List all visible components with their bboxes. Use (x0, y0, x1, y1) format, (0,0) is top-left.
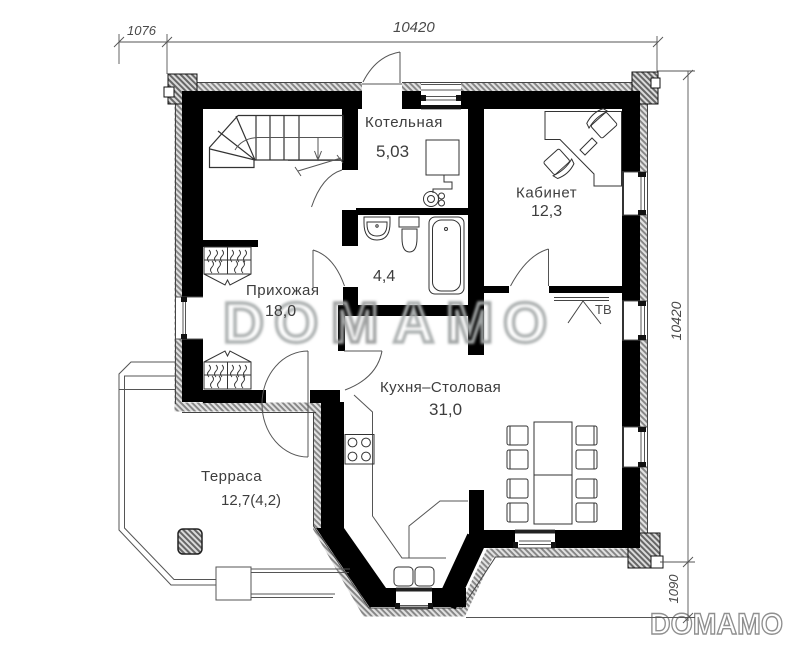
svg-text:10420: 10420 (393, 19, 435, 36)
svg-text:O: O (274, 291, 318, 355)
svg-text:ТВ: ТВ (595, 302, 612, 317)
svg-text:Терраса: Терраса (201, 468, 262, 485)
svg-text:1090: 1090 (666, 574, 681, 604)
svg-text:Кухня–Столовая: Кухня–Столовая (380, 379, 501, 396)
svg-text:1076: 1076 (127, 23, 157, 38)
svg-text:Прихожая: Прихожая (246, 282, 320, 299)
svg-text:M: M (331, 291, 378, 355)
svg-text:18,0: 18,0 (265, 303, 296, 320)
svg-text:A: A (393, 291, 434, 355)
svg-text:DOMAMO: DOMAMO (650, 608, 783, 640)
svg-text:12,7(4,2): 12,7(4,2) (221, 492, 281, 509)
svg-text:M: M (446, 291, 493, 355)
svg-text:Котельная: Котельная (365, 114, 443, 131)
svg-text:12,3: 12,3 (531, 203, 562, 220)
svg-text:O: O (503, 291, 547, 355)
svg-text:31,0: 31,0 (429, 400, 462, 419)
svg-text:5,03: 5,03 (376, 142, 409, 161)
svg-text:Кабинет: Кабинет (516, 185, 577, 202)
svg-text:10420: 10420 (668, 301, 684, 340)
svg-text:4,4: 4,4 (373, 268, 395, 285)
svg-text:D: D (223, 291, 264, 355)
